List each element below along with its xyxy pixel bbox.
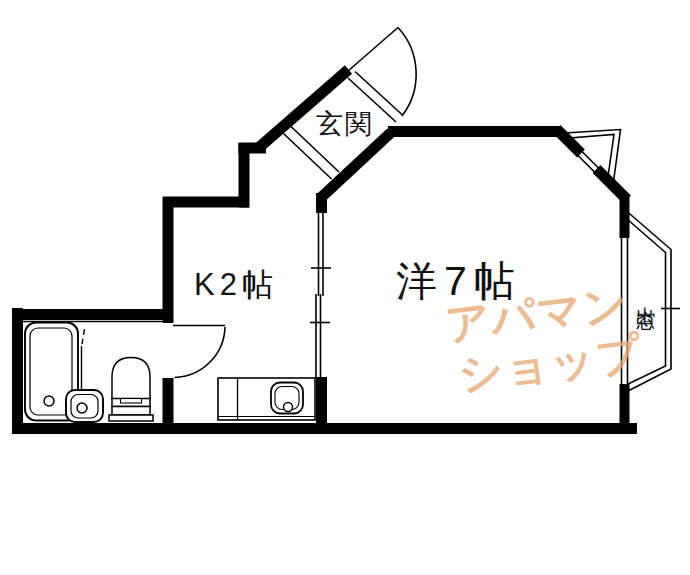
- toilet-base: [109, 415, 153, 421]
- drain-icon: [77, 403, 87, 413]
- kitchen-counter: [218, 378, 315, 420]
- entrance-door: [348, 28, 416, 117]
- drain-icon: [284, 403, 293, 412]
- toilet-bowl: [112, 358, 150, 400]
- toilet: [109, 358, 153, 422]
- washbasin: [66, 390, 103, 422]
- wall-genkan-lower: [320, 133, 391, 199]
- drain-icon: [44, 396, 54, 406]
- entrance-label: 玄関: [316, 106, 374, 142]
- bathroom-door: [173, 326, 225, 378]
- kitchen-sink: [271, 383, 303, 414]
- sliding-door: [310, 210, 331, 378]
- bay-window-label: 出窓: [633, 291, 660, 297]
- floorplan-image: 玄関 K2帖 洋7帖 出窓 アパマン ショップ: [0, 0, 690, 575]
- wall-angled-lower: [597, 169, 628, 200]
- kitchen-label: K2帖: [194, 264, 278, 306]
- door-leaf: [348, 28, 398, 72]
- toilet-tank: [112, 407, 150, 416]
- door-swing-arc: [398, 28, 416, 117]
- door-swing-arc: [175, 327, 226, 378]
